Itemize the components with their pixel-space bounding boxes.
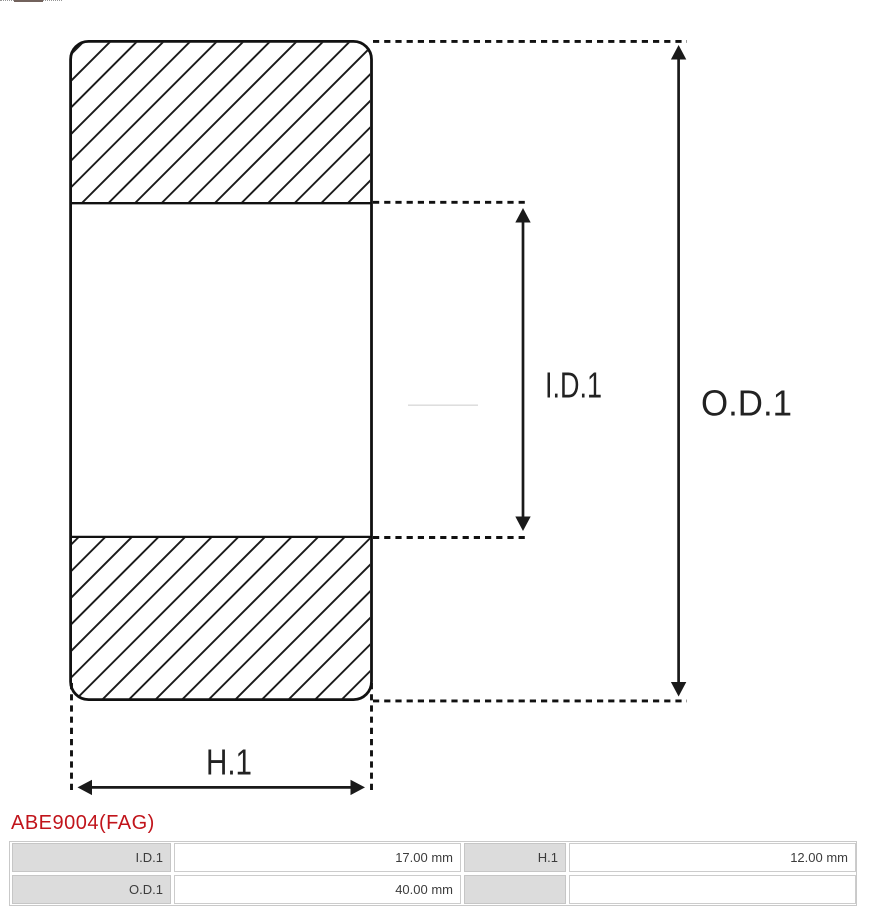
- svg-text:I.D.1: I.D.1: [545, 365, 602, 406]
- svg-text:H.1: H.1: [206, 742, 252, 783]
- svg-text:O.D.1: O.D.1: [701, 383, 792, 424]
